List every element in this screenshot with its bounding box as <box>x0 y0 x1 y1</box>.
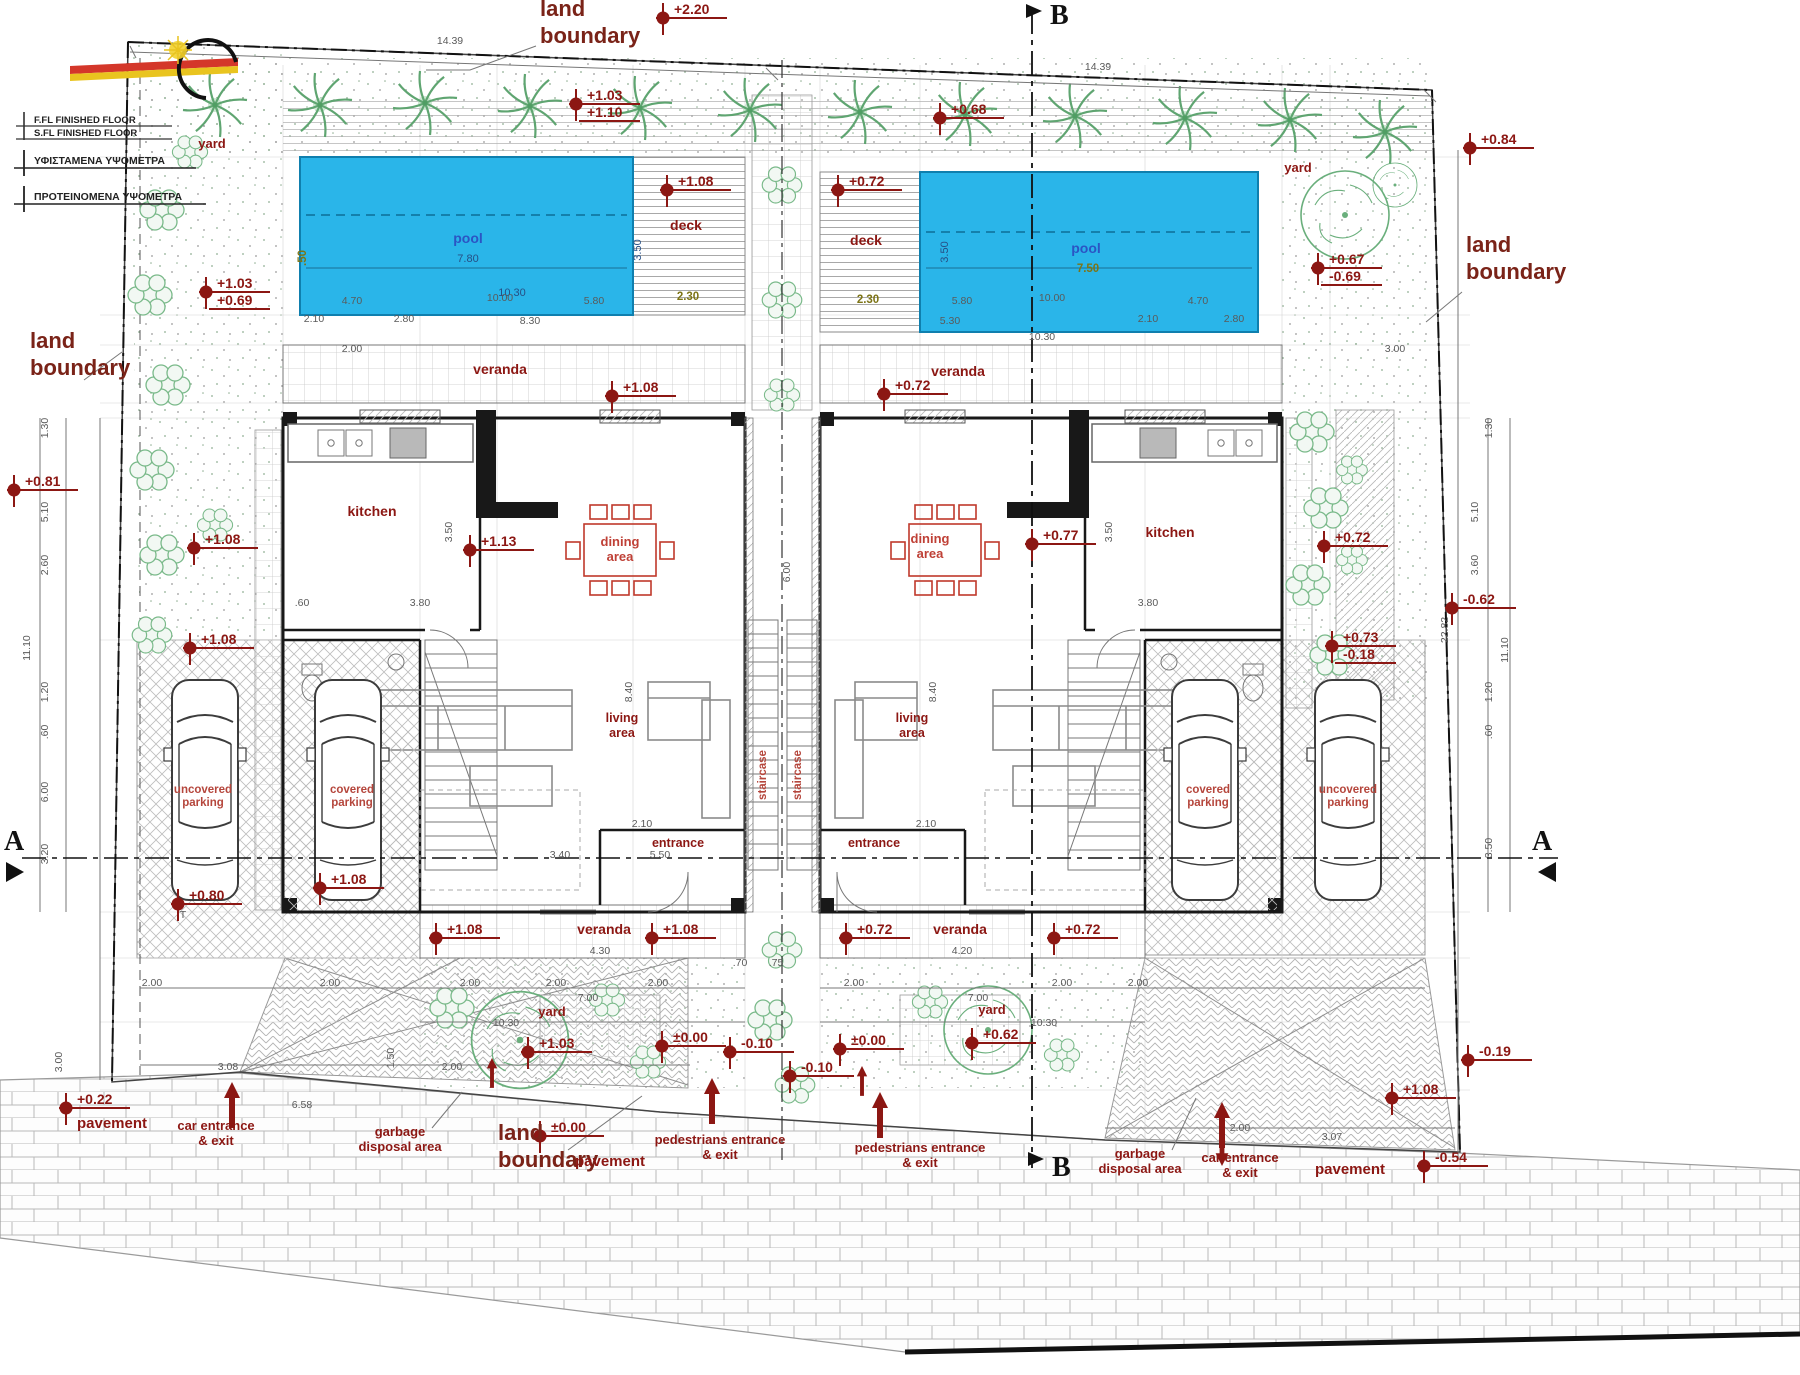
svg-text:±0.00: ±0.00 <box>673 1029 708 1045</box>
svg-text:deck: deck <box>670 217 702 233</box>
svg-text:5.10: 5.10 <box>39 502 51 523</box>
annotation-text: 2.00 <box>1128 977 1149 989</box>
svg-text:-0.10: -0.10 <box>801 1059 833 1075</box>
elevation-marker: -0.62 <box>1445 591 1516 625</box>
svg-text:boundary: boundary <box>1466 259 1567 284</box>
svg-text:kitchen: kitchen <box>347 503 396 519</box>
annotation-text: 4.70 <box>1188 295 1209 307</box>
label-uncovered-parking-right: uncoveredparking <box>1319 784 1377 809</box>
section-letter-a-left: A <box>4 826 25 857</box>
svg-text:veranda: veranda <box>473 361 527 377</box>
svg-text:staircase: staircase <box>792 750 804 800</box>
label-pavement-bottom-center: pavement <box>575 1153 645 1170</box>
svg-text:3.00: 3.00 <box>53 1052 65 1073</box>
svg-text:.60: .60 <box>1483 725 1495 740</box>
svg-text:.60: .60 <box>295 597 310 609</box>
svg-text:8.30: 8.30 <box>520 315 541 327</box>
svg-text:yard: yard <box>198 136 226 151</box>
annotation-text: 3.60 <box>1469 555 1481 576</box>
svg-text:1.30: 1.30 <box>39 418 51 439</box>
svg-text:pedestrians entrance: pedestrians entrance <box>655 1132 786 1147</box>
svg-text:pedestrians entrance: pedestrians entrance <box>855 1140 986 1155</box>
elevation-marker: +0.84 <box>1463 131 1534 165</box>
svg-text:+1.13: +1.13 <box>481 533 517 549</box>
annotation-text: 6.00 <box>39 782 51 803</box>
annotation-text: 7.50 <box>1077 263 1099 275</box>
svg-text:3.60: 3.60 <box>1469 555 1481 576</box>
annotation-text: 11.10 <box>21 635 33 661</box>
label-staircase-right: staircase <box>792 750 804 800</box>
svg-text:22.82: 22.82 <box>1439 617 1451 643</box>
annotation-text: 2.00 <box>460 977 481 989</box>
svg-text:+0.72: +0.72 <box>895 377 931 393</box>
svg-text:+1.08: +1.08 <box>663 921 699 937</box>
svg-text:+0.72: +0.72 <box>849 173 885 189</box>
svg-text:+0.72: +0.72 <box>857 921 893 937</box>
annotation-text: 2.80 <box>394 313 415 325</box>
svg-text:-0.69: -0.69 <box>1329 268 1361 284</box>
svg-text:3.50: 3.50 <box>1103 522 1115 543</box>
annotation-text: 1.20 <box>1483 682 1495 703</box>
svg-text:3.08: 3.08 <box>218 1061 239 1073</box>
svg-text:+0.69: +0.69 <box>217 292 253 308</box>
annotation-text: 3.07 <box>1322 1131 1343 1143</box>
svg-text:+0.77: +0.77 <box>1043 527 1079 543</box>
deck-right <box>820 172 920 332</box>
svg-text:3.07: 3.07 <box>1322 1131 1343 1143</box>
annotation-text: .60 <box>295 597 310 609</box>
svg-text:+0.81: +0.81 <box>25 473 61 489</box>
annotation-text: 2.00 <box>442 1061 463 1073</box>
svg-text:8.40: 8.40 <box>927 682 939 703</box>
label-living-left: livingarea <box>606 711 639 740</box>
svg-text:2.00: 2.00 <box>1230 1122 1251 1134</box>
svg-text:+1.08: +1.08 <box>678 173 714 189</box>
annotation-text: 6.00 <box>781 562 793 583</box>
svg-text:10.00: 10.00 <box>1039 292 1065 304</box>
annotation-text: 3.08 <box>218 1061 239 1073</box>
label-veranda-bottom-left: veranda <box>577 921 631 937</box>
svg-text:veranda: veranda <box>577 921 631 937</box>
svg-text:disposal area: disposal area <box>358 1139 442 1154</box>
svg-text:1.20: 1.20 <box>39 682 51 703</box>
svg-text:2.00: 2.00 <box>342 343 363 355</box>
label-kitchen-left: kitchen <box>347 503 396 519</box>
annotation-text: 5.80 <box>584 295 605 307</box>
annotation-text: 2.00 <box>320 977 341 989</box>
svg-text:car entrance: car entrance <box>1201 1150 1278 1165</box>
svg-text:& exit: & exit <box>198 1133 234 1148</box>
annotation-text: 4.20 <box>952 945 973 957</box>
svg-text:6.58: 6.58 <box>292 1099 313 1111</box>
svg-text:2.10: 2.10 <box>304 313 325 325</box>
label-pavement-bottom-right: pavement <box>1315 1161 1385 1178</box>
svg-text:±0.00: ±0.00 <box>851 1032 886 1048</box>
svg-text:±0.00: ±0.00 <box>551 1119 586 1135</box>
annotation-text: .60 <box>39 725 51 740</box>
annotation-text: 4.70 <box>342 295 363 307</box>
svg-text:entrance: entrance <box>848 836 900 850</box>
svg-text:& exit: & exit <box>902 1155 938 1170</box>
annotation-text: 8.40 <box>927 682 939 703</box>
svg-text:5.80: 5.80 <box>952 295 973 307</box>
label-dining-left: diningarea <box>601 534 640 564</box>
annotation-text: 7.00 <box>578 992 599 1004</box>
annotation-text: 2.10 <box>632 818 653 830</box>
svg-text:5.30: 5.30 <box>940 315 961 327</box>
annotation-text: 8.30 <box>520 315 541 327</box>
kitchen-counter-left <box>288 424 473 462</box>
svg-text:1.50: 1.50 <box>385 1048 397 1069</box>
svg-text:veranda: veranda <box>931 363 985 379</box>
svg-text:yard: yard <box>538 1004 566 1019</box>
svg-text:3.50: 3.50 <box>1483 838 1495 859</box>
svg-text:+0.67: +0.67 <box>1329 251 1365 267</box>
svg-text:T: T <box>180 909 187 921</box>
label-deck-left: deck <box>670 217 702 233</box>
svg-text:+0.73: +0.73 <box>1343 629 1379 645</box>
legend-proposed-levels: ΠΡΟΤΕΙΝΟΜΕΝΑ ΥΨΟΜΕΤΡΑ <box>34 191 183 203</box>
svg-text:area: area <box>607 549 635 564</box>
svg-text:2.10: 2.10 <box>1138 313 1159 325</box>
section-marker-a-right <box>1538 862 1556 882</box>
svg-text:& exit: & exit <box>702 1147 738 1162</box>
annotation-text: 1.50 <box>385 1048 397 1069</box>
annotation-text: 2.00 <box>1052 977 1073 989</box>
svg-text:+1.08: +1.08 <box>623 379 659 395</box>
annotation-text: 3.40 <box>550 849 571 861</box>
svg-text:4.70: 4.70 <box>1188 295 1209 307</box>
svg-text:7.50: 7.50 <box>1077 263 1099 275</box>
svg-text:10.30: 10.30 <box>493 1017 519 1029</box>
svg-text:2.00: 2.00 <box>1052 977 1073 989</box>
label-yard-bottom-right: yard <box>978 1002 1006 1017</box>
svg-text:3.00: 3.00 <box>1385 343 1406 355</box>
pavement-strip <box>0 1073 1800 1352</box>
svg-text:2.30: 2.30 <box>857 294 879 306</box>
svg-text:uncovered: uncovered <box>174 784 232 796</box>
annotation-text: 2.00 <box>844 977 865 989</box>
svg-text:2.80: 2.80 <box>394 313 415 325</box>
annotation-text: 14.39 <box>437 35 463 47</box>
svg-text:3.50: 3.50 <box>939 241 951 262</box>
annotation-text: 11.10 <box>1499 637 1511 663</box>
svg-text:car entrance: car entrance <box>177 1118 254 1133</box>
svg-text:2.10: 2.10 <box>632 818 653 830</box>
svg-text:+1.08: +1.08 <box>447 921 483 937</box>
section-marker-a-left <box>6 862 24 882</box>
svg-text:1.20: 1.20 <box>1483 682 1495 703</box>
annotation-text: 1.30 <box>1483 418 1495 439</box>
svg-text:2.00: 2.00 <box>546 977 567 989</box>
section-letter-a-right: A <box>1532 826 1553 857</box>
svg-text:10.30: 10.30 <box>1029 331 1055 343</box>
annotation-text: 3.50 <box>443 522 455 543</box>
svg-text:area: area <box>899 726 926 740</box>
svg-text:5.10: 5.10 <box>1469 502 1481 523</box>
svg-text:2.00: 2.00 <box>142 977 163 989</box>
svg-text:& exit: & exit <box>1222 1165 1258 1180</box>
svg-text:covered: covered <box>330 784 374 796</box>
svg-text:2.80: 2.80 <box>1224 313 1245 325</box>
annotation-text: 2.10 <box>916 818 937 830</box>
label-covered-parking-right: coveredparking <box>1186 784 1230 809</box>
annotation-text: 3.50 <box>939 241 951 262</box>
door-arc <box>430 630 468 668</box>
svg-text:+0.22: +0.22 <box>77 1091 113 1107</box>
svg-text:parking: parking <box>331 797 373 809</box>
svg-text:3.80: 3.80 <box>410 597 431 609</box>
label-yard-bottom-left: yard <box>538 1004 566 1019</box>
svg-text:kitchen: kitchen <box>1145 524 1194 540</box>
svg-text:pool: pool <box>1071 240 1101 256</box>
svg-text:pavement: pavement <box>575 1153 645 1170</box>
svg-text:+1.03: +1.03 <box>217 275 253 291</box>
annotation-text: 5.10 <box>39 502 51 523</box>
svg-text:land: land <box>1466 232 1511 257</box>
svg-text:5.50: 5.50 <box>650 849 671 861</box>
svg-text:parking: parking <box>1187 797 1229 809</box>
annotation-text: 3.50 <box>1103 522 1115 543</box>
svg-text:11.10: 11.10 <box>21 635 33 661</box>
svg-text:pavement: pavement <box>77 1115 147 1132</box>
svg-text:2.00: 2.00 <box>320 977 341 989</box>
svg-text:disposal area: disposal area <box>1098 1161 1182 1176</box>
label-t-mark: T <box>180 909 187 921</box>
label-pavement-bottom-left: pavement <box>77 1115 147 1132</box>
annotation-text: 4.30 <box>590 945 611 957</box>
section-marker-b-top <box>1026 4 1042 18</box>
section-letter-b-top: B <box>1050 0 1069 31</box>
annotation-text: 5.50 <box>650 849 671 861</box>
label-covered-parking-left: coveredparking <box>330 784 374 809</box>
annotation-text: 10.00 <box>487 292 513 304</box>
svg-text:3.40: 3.40 <box>550 849 571 861</box>
svg-text:+1.03: +1.03 <box>587 87 623 103</box>
svg-text:+1.08: +1.08 <box>201 631 237 647</box>
annotation-text: 2.30 <box>677 291 699 303</box>
legend-existing-levels: ΥΦΙΣΤΑΜΕΝΑ ΥΨΟΜΕΤΡΑ <box>34 155 165 167</box>
label-entrance-right: entrance <box>848 836 900 850</box>
kitchen-counter-right <box>1092 424 1277 462</box>
annotation-text: .75 <box>769 957 784 969</box>
annotation-text: 6.58 <box>292 1099 313 1111</box>
svg-text:14.39: 14.39 <box>1085 61 1111 73</box>
svg-text:-0.10: -0.10 <box>741 1035 773 1051</box>
legend-finished-floor-2: S.FL FINISHED FLOOR <box>34 128 137 139</box>
svg-text:+0.68: +0.68 <box>951 101 987 117</box>
svg-text:7.00: 7.00 <box>578 992 599 1004</box>
annotation-text: 2.60 <box>39 555 51 576</box>
svg-text:2.30: 2.30 <box>677 291 699 303</box>
svg-text:-0.62: -0.62 <box>1463 591 1495 607</box>
svg-text:2.00: 2.00 <box>442 1061 463 1073</box>
svg-text:+0.80: +0.80 <box>189 887 225 903</box>
elevation-marker: +1.13 <box>463 533 534 567</box>
label-staircase-left: staircase <box>757 750 769 800</box>
window-sill <box>360 410 440 423</box>
svg-text:dining: dining <box>911 531 950 546</box>
svg-text:entrance: entrance <box>652 836 704 850</box>
svg-text:+1.08: +1.08 <box>331 871 367 887</box>
svg-text:pavement: pavement <box>1315 1161 1385 1178</box>
annotation-text: 3.20 <box>39 844 51 865</box>
svg-text:2.00: 2.00 <box>648 977 669 989</box>
svg-text:-0.18: -0.18 <box>1343 646 1375 662</box>
label-entrance-left: entrance <box>652 836 704 850</box>
svg-text:parking: parking <box>182 797 224 809</box>
svg-text:land: land <box>30 328 75 353</box>
svg-text:2.00: 2.00 <box>1128 977 1149 989</box>
annotation-text: 5.10 <box>1469 502 1481 523</box>
svg-text:3.20: 3.20 <box>39 844 51 865</box>
svg-text:deck: deck <box>850 232 882 248</box>
svg-text:garbage: garbage <box>375 1124 426 1139</box>
svg-text:6.00: 6.00 <box>781 562 793 583</box>
svg-text:uncovered: uncovered <box>1319 784 1377 796</box>
svg-text:land: land <box>540 0 585 21</box>
svg-text:+1.08: +1.08 <box>205 531 241 547</box>
annotation-text: 5.30 <box>940 315 961 327</box>
svg-text:boundary: boundary <box>30 355 131 380</box>
annotation-text: 1.30 <box>39 418 51 439</box>
annotation-text: 10.30 <box>493 1017 519 1029</box>
section-letter-b-bottom: B <box>1052 1152 1071 1183</box>
svg-text:veranda: veranda <box>933 921 987 937</box>
label-veranda-top-left: veranda <box>473 361 527 377</box>
annotation-text: 2.00 <box>142 977 163 989</box>
annotation-text: 3.00 <box>1385 343 1406 355</box>
svg-text:2.00: 2.00 <box>460 977 481 989</box>
svg-text:+0.72: +0.72 <box>1335 529 1371 545</box>
staircase-villa-right <box>1068 640 1140 870</box>
annotation-text: 2.30 <box>857 294 879 306</box>
annotation-text: 2.00 <box>1230 1122 1251 1134</box>
label-veranda-top-right: veranda <box>931 363 985 379</box>
svg-text:parking: parking <box>1327 797 1369 809</box>
svg-text:-0.54: -0.54 <box>1435 1149 1467 1165</box>
annotation-text: 22.82 <box>1439 617 1451 643</box>
annotation-text: .70 <box>733 957 748 969</box>
svg-text:14.39: 14.39 <box>437 35 463 47</box>
label-land-boundary-left: landboundary <box>30 328 131 380</box>
annotation-text: 2.10 <box>304 313 325 325</box>
annotation-text: 10.30 <box>1029 331 1055 343</box>
svg-text:yard: yard <box>1284 160 1312 175</box>
svg-text:3.80: 3.80 <box>1138 597 1159 609</box>
label-living-right: livingarea <box>896 711 929 740</box>
svg-text:1.30: 1.30 <box>1483 418 1495 439</box>
svg-text:-0.19: -0.19 <box>1479 1043 1511 1059</box>
svg-text:yard: yard <box>978 1002 1006 1017</box>
annotation-text: 7.80 <box>457 253 478 265</box>
annotation-text: 3.80 <box>410 597 431 609</box>
svg-text:4.70: 4.70 <box>342 295 363 307</box>
svg-text:.70: .70 <box>733 957 748 969</box>
svg-text:+1.08: +1.08 <box>1403 1081 1439 1097</box>
annotation-text: 2.00 <box>648 977 669 989</box>
svg-text:6.00: 6.00 <box>39 782 51 803</box>
svg-text:garbage: garbage <box>1115 1146 1166 1161</box>
annotation-text: 2.80 <box>1224 313 1245 325</box>
label-yard-top-left: yard <box>198 136 226 151</box>
svg-text:7.80: 7.80 <box>457 253 478 265</box>
annotation-text: .60 <box>1483 725 1495 740</box>
label-uncovered-parking-left: uncoveredparking <box>174 784 232 809</box>
annotation-text: 2.10 <box>1138 313 1159 325</box>
svg-text:dining: dining <box>601 534 640 549</box>
annotation-text: 3.50 <box>1483 838 1495 859</box>
annotation-text: 3.50 <box>632 239 644 260</box>
svg-text:10.30: 10.30 <box>1031 1017 1057 1029</box>
svg-text:area: area <box>917 546 945 561</box>
annotation-text: 8.40 <box>623 682 635 703</box>
svg-text:5.80: 5.80 <box>584 295 605 307</box>
label-deck-right: deck <box>850 232 882 248</box>
elevation-marker: -0.19 <box>1461 1043 1532 1077</box>
site-plan-drawing: B B A A F.FL FINISHED FLOOR S.FL FINISHE… <box>0 0 1800 1375</box>
annotation-text: 3.80 <box>1138 597 1159 609</box>
svg-text:+1.03: +1.03 <box>539 1035 575 1051</box>
annotation-text: 1.20 <box>39 682 51 703</box>
svg-text:11.10: 11.10 <box>1499 637 1511 663</box>
annotation-text: 5.80 <box>952 295 973 307</box>
svg-text:8.40: 8.40 <box>623 682 635 703</box>
staircase-villa-left <box>425 640 497 870</box>
label-land-boundary-top: landboundary <box>540 0 641 48</box>
svg-text:staircase: staircase <box>757 750 769 800</box>
svg-text:+2.20: +2.20 <box>674 1 710 17</box>
svg-text:3.50: 3.50 <box>443 522 455 543</box>
dining-set-right <box>891 505 999 595</box>
svg-text:.75: .75 <box>769 957 784 969</box>
label-yard-top-right: yard <box>1284 160 1312 175</box>
site-plan-canvas: B B A A F.FL FINISHED FLOOR S.FL FINISHE… <box>0 0 1800 1375</box>
svg-text:living: living <box>896 711 929 725</box>
svg-text:land: land <box>498 1120 543 1145</box>
label-kitchen-right: kitchen <box>1145 524 1194 540</box>
label-pool-left: pool <box>453 230 483 246</box>
svg-text:boundary: boundary <box>540 23 641 48</box>
svg-text:covered: covered <box>1186 784 1230 796</box>
svg-text:living: living <box>606 711 639 725</box>
annotation-text: 10.00 <box>1039 292 1065 304</box>
svg-text:4.30: 4.30 <box>590 945 611 957</box>
svg-text:3.50: 3.50 <box>632 239 644 260</box>
svg-text:4.20: 4.20 <box>952 945 973 957</box>
svg-text:2.60: 2.60 <box>39 555 51 576</box>
svg-text:+0.62: +0.62 <box>983 1026 1019 1042</box>
svg-text:.60: .60 <box>39 725 51 740</box>
label-pool-right: pool <box>1071 240 1101 256</box>
annotation-text: .50 <box>297 250 309 266</box>
annotation-text: 3.00 <box>53 1052 65 1073</box>
svg-text:pool: pool <box>453 230 483 246</box>
svg-text:2.00: 2.00 <box>844 977 865 989</box>
svg-text:2.10: 2.10 <box>916 818 937 830</box>
svg-text:+0.72: +0.72 <box>1065 921 1101 937</box>
annotation-text: 14.39 <box>1085 61 1111 73</box>
label-veranda-bottom-right: veranda <box>933 921 987 937</box>
annotation-text: 10.30 <box>1031 1017 1057 1029</box>
label-land-boundary-right: landboundary <box>1466 232 1567 284</box>
elevation-marker: +2.20 <box>656 1 727 35</box>
svg-text:.50: .50 <box>297 250 309 266</box>
svg-text:area: area <box>609 726 636 740</box>
svg-text:+0.84: +0.84 <box>1481 131 1517 147</box>
svg-text:+1.10: +1.10 <box>587 104 623 120</box>
label-dining-right: diningarea <box>911 531 950 561</box>
